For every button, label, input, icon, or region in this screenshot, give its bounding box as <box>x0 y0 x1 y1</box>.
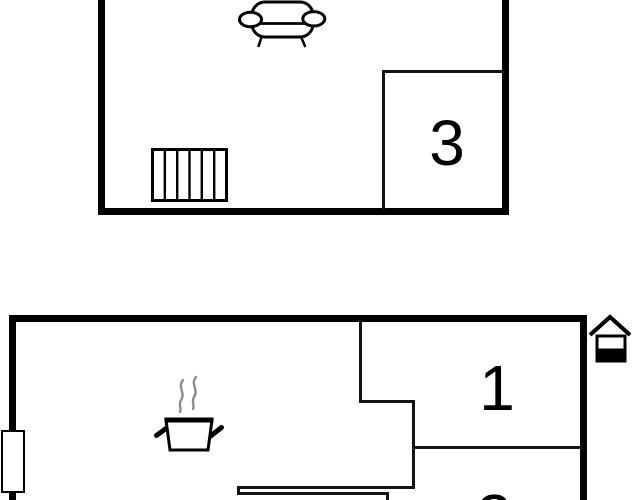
wall-segment <box>412 446 580 449</box>
wall-segment <box>10 315 587 322</box>
cooking-pot-icon <box>140 370 235 455</box>
wall-segment <box>359 321 362 403</box>
wall-segment <box>386 492 389 500</box>
floorplan-canvas: 3 <box>0 0 632 500</box>
wall-segment <box>98 208 509 215</box>
wall-segment <box>359 400 415 403</box>
room-label-1: 1 <box>479 356 515 420</box>
wall-segment <box>580 315 587 500</box>
wall-segment <box>502 0 509 215</box>
room-label-3: 3 <box>429 111 465 175</box>
wall-segment <box>382 70 505 73</box>
wall-segment <box>382 70 385 210</box>
wall-segment <box>237 486 415 489</box>
wall-segment <box>9 315 16 431</box>
wall-segment <box>240 492 388 495</box>
sofa-icon <box>232 0 332 52</box>
wall-segment <box>412 400 415 489</box>
radiator-icon <box>150 147 230 205</box>
window-icon <box>1 430 25 493</box>
room-label-2: 2 <box>476 485 512 500</box>
wall-segment <box>9 492 16 500</box>
wall-segment <box>98 0 105 215</box>
entrance-house-icon <box>587 310 632 365</box>
